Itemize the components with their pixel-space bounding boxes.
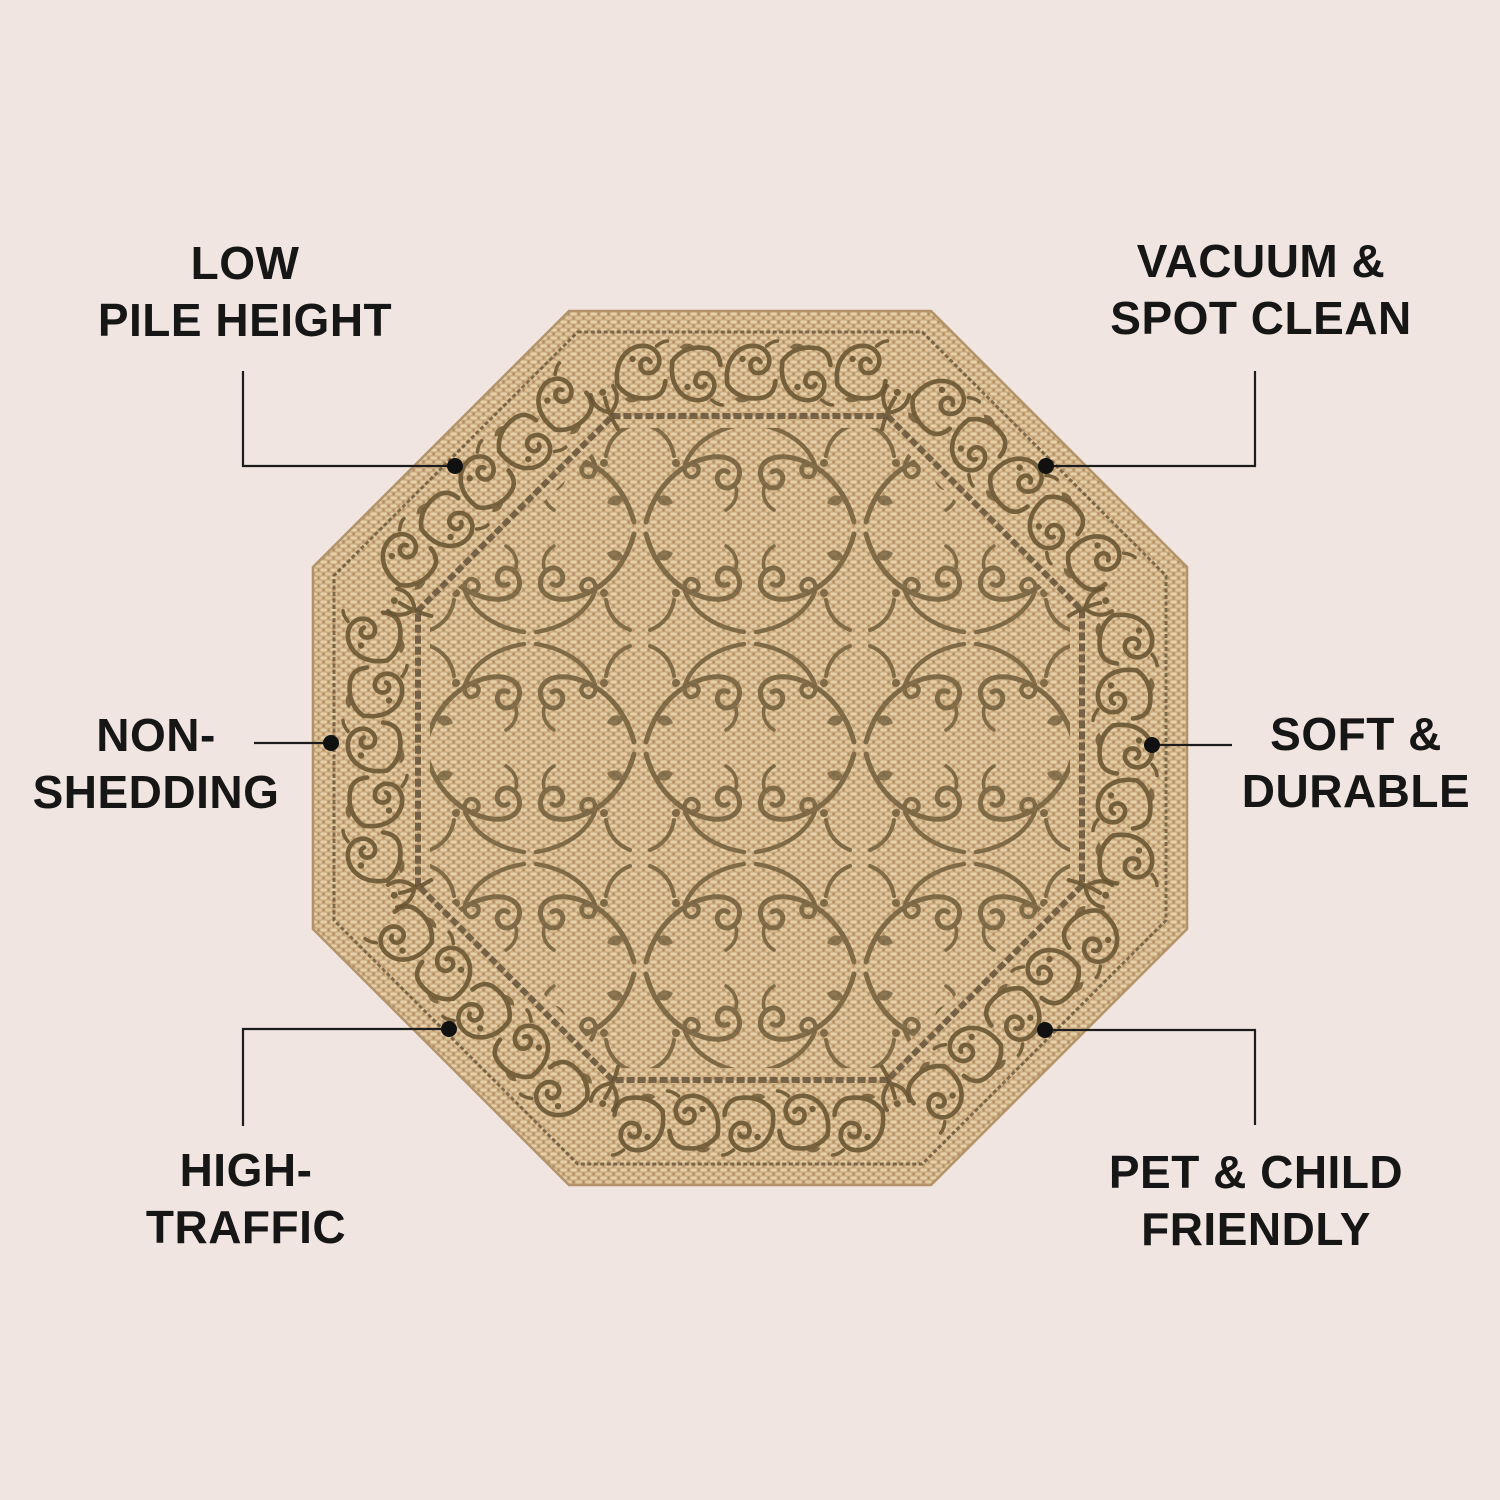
- callout-line-vacuum-spot-clean: [1046, 371, 1255, 466]
- feature-label-line: VACUUM &: [1110, 233, 1411, 290]
- callout-dot-non-shedding: [323, 735, 339, 751]
- feature-label-line: LOW: [98, 235, 392, 292]
- callout-dot-low-pile-height: [447, 458, 463, 474]
- feature-label-line: PET & CHILD: [1109, 1144, 1403, 1201]
- feature-label-line: PILE HEIGHT: [98, 292, 392, 349]
- callout-dot-soft-durable: [1144, 737, 1160, 753]
- callout-line-pet-child-friendly: [1045, 1030, 1255, 1125]
- feature-label-line: DURABLE: [1242, 763, 1470, 820]
- feature-label-low-pile-height: LOW PILE HEIGHT: [98, 235, 392, 349]
- feature-label-line: TRAFFIC: [146, 1199, 346, 1256]
- feature-label-line: FRIENDLY: [1109, 1201, 1403, 1258]
- feature-label-line: HIGH-: [146, 1142, 346, 1199]
- callout-line-low-pile-height: [243, 371, 455, 466]
- callout-line-high-traffic: [243, 1029, 449, 1126]
- feature-label-pet-child-friendly: PET & CHILD FRIENDLY: [1109, 1144, 1403, 1258]
- rug-field-damask: [430, 428, 1070, 1068]
- callout-dot-high-traffic: [441, 1021, 457, 1037]
- feature-label-soft-durable: SOFT & DURABLE: [1242, 706, 1470, 820]
- feature-label-line: SPOT CLEAN: [1110, 290, 1411, 347]
- feature-label-line: SOFT &: [1242, 706, 1470, 763]
- feature-label-high-traffic: HIGH- TRAFFIC: [146, 1142, 346, 1256]
- feature-label-line: NON-: [33, 707, 280, 764]
- feature-label-line: SHEDDING: [33, 764, 280, 821]
- feature-label-non-shedding: NON- SHEDDING: [33, 707, 280, 821]
- product-infographic: LOW PILE HEIGHT VACUUM & SPOT CLEAN NON-…: [0, 0, 1500, 1500]
- callout-dot-vacuum-spot-clean: [1038, 458, 1054, 474]
- feature-label-vacuum-spot-clean: VACUUM & SPOT CLEAN: [1110, 233, 1411, 347]
- callout-dot-pet-child-friendly: [1037, 1022, 1053, 1038]
